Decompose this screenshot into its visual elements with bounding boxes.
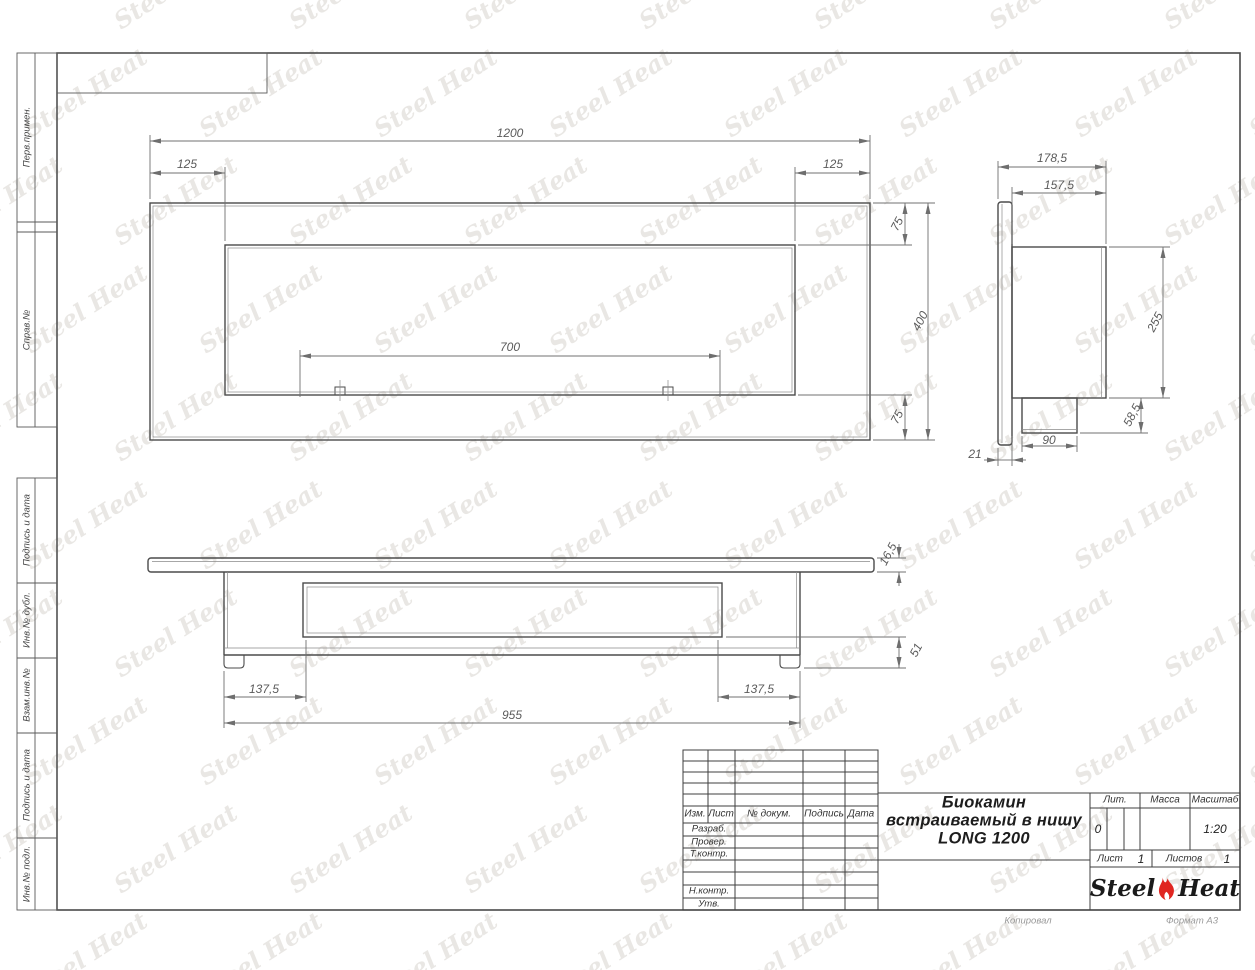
scale-label: Масштаб xyxy=(1192,795,1239,806)
dim-bottom-body-width: 955 xyxy=(502,708,522,722)
dimension-lines xyxy=(150,135,1170,728)
flame-icon xyxy=(1157,873,1176,905)
front-view-detail xyxy=(153,206,867,437)
sheet-number: 1 xyxy=(1138,852,1145,866)
logo-heat-text: Heat xyxy=(1178,875,1240,902)
drawing-sheet: Steel HeatSteel HeatSteel HeatSteel Heat… xyxy=(0,0,1255,970)
title-block-row-tkontr: Т.контр. xyxy=(690,849,728,860)
dim-side-overall-depth: 178,5 xyxy=(1037,151,1067,165)
dim-front-right-offset: 125 xyxy=(823,157,843,171)
dim-front-overall-width: 1200 xyxy=(497,126,524,140)
sidebar-label-inv-podl: Инв.№ подл. xyxy=(22,846,33,902)
bottom-view-detail xyxy=(152,562,870,649)
sidebar-label-sprav-no: Справ.№ xyxy=(22,310,33,351)
title-block-col-podpis: Подпись xyxy=(804,809,844,820)
frame-attachment-columns xyxy=(17,53,267,910)
document-title-line-3: LONG 1200 xyxy=(938,830,1030,849)
title-block-col-list: Лист xyxy=(708,809,734,820)
dim-front-burner-width: 700 xyxy=(500,340,520,354)
title-block-col-data: Дата xyxy=(848,809,874,820)
mass-label: Масса xyxy=(1150,795,1180,806)
dim-side-box-depth: 90 xyxy=(1042,433,1055,447)
dim-bottom-left-offset: 137,5 xyxy=(249,682,279,696)
title-block-row-nkontr: Н.контр. xyxy=(689,886,729,897)
logo-steel-text: Steel xyxy=(1090,875,1155,902)
dim-side-body-depth: 157,5 xyxy=(1044,178,1074,192)
steel-heat-logo: Steel Heat xyxy=(1090,867,1240,910)
bottom-view xyxy=(148,558,874,668)
dim-side-flange-depth: 21 xyxy=(968,447,981,461)
sheets-label: Листов xyxy=(1166,854,1202,865)
dim-bottom-right-offset: 137,5 xyxy=(744,682,774,696)
sheets-total: 1 xyxy=(1224,852,1231,866)
document-title-line-1: Биокамин xyxy=(942,794,1026,813)
side-view xyxy=(998,202,1106,445)
side-view-detail xyxy=(1002,204,1102,443)
lit-label: Лит. xyxy=(1103,795,1126,806)
document-title-line-2: встраиваемый в нишу xyxy=(886,812,1082,831)
sheet-label: Лист xyxy=(1097,854,1123,865)
title-block-row-utv: Утв. xyxy=(698,899,720,910)
scale-value: 1:20 xyxy=(1203,822,1226,836)
title-block-row-razrab: Разраб. xyxy=(692,824,726,835)
lit-value: 0 xyxy=(1095,822,1102,836)
sidebar-label-podpis-data-1: Подпись и дата xyxy=(22,494,33,566)
title-block-row-prover: Провер. xyxy=(691,837,726,848)
footer-kopiroval: Копировал xyxy=(1004,916,1051,927)
title-block-col-izm: Изм. xyxy=(684,809,705,820)
sidebar-label-inv-dubl: Инв.№ дубл. xyxy=(22,592,33,648)
dim-front-left-offset: 125 xyxy=(177,157,197,171)
sidebar-label-podpis-data-2: Подпись и дата xyxy=(22,749,33,821)
sidebar-label-perv-primen: Перв.примен. xyxy=(22,107,33,168)
footer-format: Формат A3 xyxy=(1166,916,1218,927)
sidebar-label-vzam-inv: Взам.инв.№ xyxy=(22,668,33,721)
title-block-col-dokum: № докум. xyxy=(747,809,791,820)
front-view xyxy=(150,203,870,440)
